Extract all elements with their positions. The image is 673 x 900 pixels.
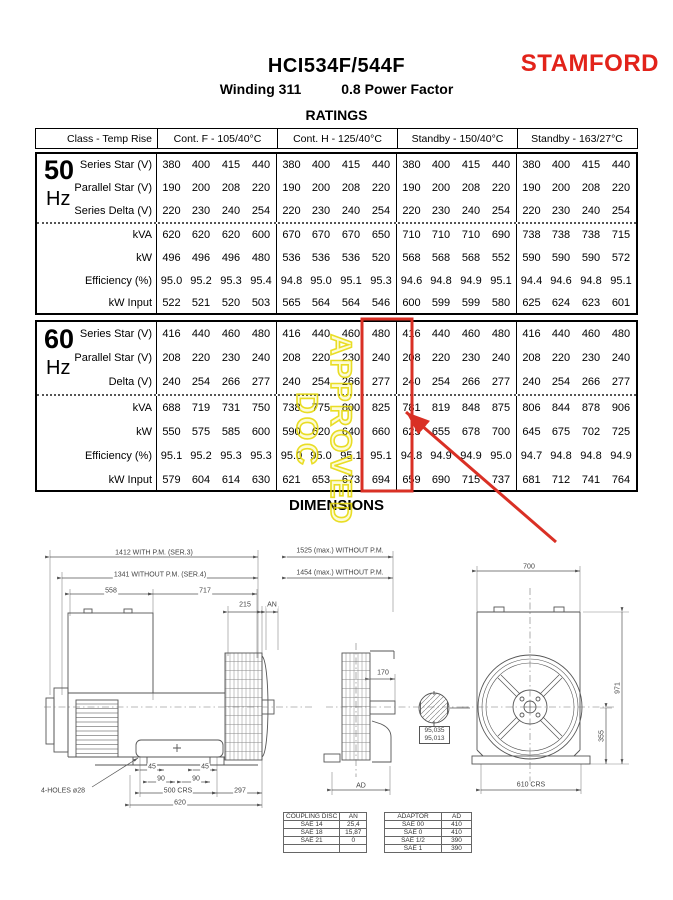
ratings-cell: 208 (276, 346, 306, 370)
dim-label: 170 (376, 670, 390, 677)
right-view-body (472, 607, 590, 764)
ratings-cell: 645 (516, 420, 546, 444)
ratings-cell: 599 (456, 292, 486, 315)
ratings-cell: 200 (306, 177, 336, 200)
dim-label: 4-HOLES ø28 (40, 788, 86, 795)
ratings-cell: 659 (396, 468, 426, 492)
left-view-extension-lines (50, 550, 278, 808)
ratings-cell: 655 (426, 420, 456, 444)
sae-cell: 15,87 (340, 829, 367, 837)
ratings-cell: 600 (396, 292, 426, 315)
ratings-cell: 400 (426, 154, 456, 177)
ratings-cell: 400 (306, 154, 336, 177)
ratings-cell: 95.1 (156, 444, 186, 468)
ratings-cell: 670 (306, 224, 336, 247)
ratings-cell: 95.3 (216, 269, 246, 292)
dim-label: 1454 (max.) WITHOUT P.M. (295, 570, 384, 577)
ratings-cell: 266 (576, 370, 606, 394)
ratings-cell: 95.0 (306, 269, 336, 292)
ratings-cell: 600 (246, 224, 276, 247)
ratings-row-label: kW Input (37, 292, 156, 315)
ratings-cell: 536 (276, 247, 306, 270)
sae-row: SAE 0410 (385, 829, 472, 837)
ratings-cell: 95.2 (186, 269, 216, 292)
ratings-cell: 585 (216, 420, 246, 444)
ratings-cell: 220 (606, 177, 636, 200)
subtitle: Winding 3110.8 Power Factor (0, 81, 673, 97)
ratings-cell: 277 (366, 370, 396, 394)
ratings-row: Parallel Star (V)19020020822019020020822… (37, 177, 636, 200)
ratings-header-row: Class - Temp RiseCont. F - 105/40°CCont.… (35, 128, 638, 149)
sae-row: ADAPTORAD (385, 813, 472, 821)
ratings-cell: 208 (336, 177, 366, 200)
ratings-cell: 875 (486, 396, 516, 420)
ratings-cell: 95.1 (486, 269, 516, 292)
sae-row: SAE 1/2390 (385, 837, 472, 845)
ratings-cell: 230 (186, 199, 216, 222)
ratings-cell: 415 (456, 154, 486, 177)
ratings-cell: 94.9 (456, 444, 486, 468)
ratings-cell: 806 (516, 396, 546, 420)
ratings-cell: 95.3 (216, 444, 246, 468)
ratings-cell: 240 (276, 370, 306, 394)
dim-label: 971 (615, 681, 622, 695)
ratings-cell: 208 (456, 177, 486, 200)
ratings-cell: 480 (246, 247, 276, 270)
ratings-cell: 731 (216, 396, 246, 420)
ratings-cell: 590 (546, 247, 576, 270)
ratings-cell: 254 (366, 199, 396, 222)
ratings-cell: 625 (516, 292, 546, 315)
ratings-column-header: Cont. H - 125/40°C (277, 129, 397, 148)
winding-label: Winding 311 (220, 81, 302, 97)
ratings-cell: 536 (336, 247, 366, 270)
ratings-cell: 254 (246, 199, 276, 222)
ratings-cell: 564 (336, 292, 366, 315)
ratings-cell: 460 (576, 322, 606, 346)
ratings-cell: 440 (606, 154, 636, 177)
ratings-cell: 254 (486, 199, 516, 222)
sae-row: COUPLING DISCAN (284, 813, 367, 821)
ratings-cell: 230 (576, 346, 606, 370)
ratings-cell: 599 (426, 292, 456, 315)
freq-50-unit: Hz (46, 189, 70, 209)
adaptor-table: ADAPTORADSAE 00410SAE 0410SAE 1/2390SAE … (384, 812, 472, 853)
sae-cell: COUPLING DISC (284, 813, 340, 821)
sae-cell: SAE 00 (385, 821, 442, 829)
ratings-cell: 536 (306, 247, 336, 270)
ratings-cell: 621 (276, 468, 306, 492)
left-view-dim-lines (50, 557, 278, 805)
ratings-cell: 440 (366, 154, 396, 177)
ratings-cell: 230 (456, 346, 486, 370)
sae-cell: SAE 18 (284, 829, 340, 837)
ratings-cell: 220 (246, 177, 276, 200)
ratings-cell: 94.9 (606, 444, 636, 468)
ratings-row-label: kW (37, 420, 156, 444)
dim-label: 500 CRS (163, 788, 193, 795)
datasheet-page: HCI534F/544F Winding 3110.8 Power Factor… (0, 0, 673, 900)
power-factor-label: 0.8 Power Factor (341, 81, 453, 97)
sae-cell: 410 (442, 821, 472, 829)
ratings-cell: 240 (366, 346, 396, 370)
dim-label: AN (266, 602, 278, 609)
left-view-body (46, 609, 274, 765)
ratings-cell: 208 (156, 346, 186, 370)
sae-cell: SAE 14 (284, 821, 340, 829)
sae-cell: SAE 1 (385, 845, 442, 853)
ratings-cell: 94.8 (576, 269, 606, 292)
ratings-cell: 579 (156, 468, 186, 492)
dim-label: 45 (147, 764, 157, 771)
ratings-cell: 675 (546, 420, 576, 444)
ratings-cell: 590 (576, 247, 606, 270)
ratings-cell: 254 (606, 199, 636, 222)
ratings-cell: 650 (366, 224, 396, 247)
ratings-cell: 600 (246, 420, 276, 444)
ratings-cell: 848 (456, 396, 486, 420)
ratings-cell: 725 (606, 420, 636, 444)
ratings-cell: 614 (216, 468, 246, 492)
ratings-cell: 240 (456, 199, 486, 222)
ratings-cell: 220 (276, 199, 306, 222)
ratings-cell: 230 (426, 199, 456, 222)
ratings-cell: 719 (186, 396, 216, 420)
sae-row: SAE 1425,4 (284, 821, 367, 829)
ratings-cell: 715 (456, 468, 486, 492)
ratings-row: Series Delta (V)220230240254220230240254… (37, 199, 636, 222)
ratings-cell: 522 (156, 292, 186, 315)
ratings-cell: 240 (576, 199, 606, 222)
ratings-cell: 400 (546, 154, 576, 177)
ratings-cell: 568 (396, 247, 426, 270)
ratings-cell: 620 (216, 224, 246, 247)
freq-60-label: 60 (44, 326, 74, 353)
ratings-cell: 440 (546, 322, 576, 346)
ratings-cell: 95.0 (156, 269, 186, 292)
ratings-cell: 380 (396, 154, 426, 177)
ratings-cell: 190 (156, 177, 186, 200)
ratings-cell: 496 (186, 247, 216, 270)
ratings-cell: 416 (156, 322, 186, 346)
sae-cell: AN (340, 813, 367, 821)
ratings-row: kW Input52252152050356556456454660059959… (37, 292, 636, 315)
ratings-cell: 95.3 (246, 444, 276, 468)
ratings-row: kW49649649648053653653652056856856855259… (37, 247, 636, 270)
sae-cell: 25,4 (340, 821, 367, 829)
freq-50-label: 50 (44, 157, 74, 184)
ratings-cell: 604 (186, 468, 216, 492)
ratings-cell: 95.2 (186, 444, 216, 468)
ratings-cell: 240 (246, 346, 276, 370)
ratings-cell: 460 (216, 322, 246, 346)
ratings-cell: 190 (396, 177, 426, 200)
ratings-cell: 94.6 (546, 269, 576, 292)
ratings-cell: 440 (486, 154, 516, 177)
ratings-row-label: Efficiency (%) (37, 444, 156, 468)
ratings-cell: 620 (156, 224, 186, 247)
ratings-cell: 220 (156, 199, 186, 222)
right-view-centerlines (462, 588, 614, 782)
ratings-cell: 681 (516, 468, 546, 492)
ratings-cell: 712 (546, 468, 576, 492)
ratings-cell: 546 (366, 292, 396, 315)
sae-cell: 390 (442, 837, 472, 845)
ratings-cell: 568 (426, 247, 456, 270)
ratings-cell: 819 (426, 396, 456, 420)
ratings-table-50hz: Series Star (V)3804004154403804004154403… (35, 152, 638, 315)
mid-view-body (324, 651, 470, 762)
dim-label: 1412 WITH P.M. (SER.3) (114, 550, 194, 557)
ratings-cell: 625 (396, 420, 426, 444)
ratings-cell: 503 (246, 292, 276, 315)
ratings-cell: 630 (246, 468, 276, 492)
ratings-cell: 94.8 (426, 269, 456, 292)
ratings-cell: 94.8 (546, 444, 576, 468)
ratings-cell: 825 (366, 396, 396, 420)
dim-label: 1341 WITHOUT P.M. (SER.4) (113, 572, 207, 579)
ratings-cell: 624 (546, 292, 576, 315)
ratings-cell: 878 (576, 396, 606, 420)
ratings-cell: 550 (156, 420, 186, 444)
ratings-row: Series Star (V)3804004154403804004154403… (37, 154, 636, 177)
sae-row: SAE 210 (284, 837, 367, 845)
ratings-column-header: Class - Temp Rise (36, 129, 157, 148)
ratings-cell: 94.6 (396, 269, 426, 292)
ratings-cell: 710 (426, 224, 456, 247)
ratings-cell: 94.4 (516, 269, 546, 292)
dim-label: AD (355, 783, 367, 790)
stamford-logo: STAMFORD (521, 50, 659, 78)
ratings-cell: 738 (516, 224, 546, 247)
dim-label: 717 (198, 588, 212, 595)
ratings-cell: 220 (546, 346, 576, 370)
ratings-cell: 440 (246, 154, 276, 177)
sae-cell: SAE 21 (284, 837, 340, 845)
ratings-cell: 208 (516, 346, 546, 370)
holes-leader-line (92, 758, 138, 787)
ratings-cell: 741 (576, 468, 606, 492)
ratings-cell: 590 (516, 247, 546, 270)
ratings-cell: 496 (216, 247, 246, 270)
ratings-cell: 572 (606, 247, 636, 270)
ratings-cell: 220 (396, 199, 426, 222)
ratings-cell: 94.9 (426, 444, 456, 468)
shaft-tolerance-box: 95,035 95,013 (419, 726, 450, 744)
ratings-cell: 480 (246, 322, 276, 346)
ratings-cell: 240 (216, 199, 246, 222)
ratings-cell: 200 (426, 177, 456, 200)
right-view-dim-lines (477, 571, 622, 790)
sae-cell (340, 845, 367, 853)
ratings-cell: 700 (486, 420, 516, 444)
ratings-cell: 230 (546, 199, 576, 222)
ratings-cell: 400 (186, 154, 216, 177)
ratings-column-header: Standby - 163/27°C (517, 129, 636, 148)
ratings-cell: 220 (366, 177, 396, 200)
dim-label: 90 (191, 776, 201, 783)
ratings-row: kVA6206206206006706706706507107107106907… (37, 222, 636, 247)
ratings-cell: 94.8 (396, 444, 426, 468)
sae-cell (284, 845, 340, 853)
ratings-cell: 230 (306, 199, 336, 222)
ratings-cell: 95.1 (606, 269, 636, 292)
dim-label: 620 (173, 800, 187, 807)
ratings-cell: 715 (606, 224, 636, 247)
dim-label: 610 CRS (516, 782, 546, 789)
ratings-cell: 520 (366, 247, 396, 270)
ratings-cell: 208 (396, 346, 426, 370)
ratings-cell: 415 (216, 154, 246, 177)
sae-cell: 390 (442, 845, 472, 853)
ratings-cell: 480 (486, 322, 516, 346)
ratings-cell: 764 (606, 468, 636, 492)
ratings-cell: 575 (186, 420, 216, 444)
dim-label: 215 (238, 602, 252, 609)
ratings-cell: 620 (186, 224, 216, 247)
ratings-cell: 240 (396, 370, 426, 394)
sae-cell: AD (442, 813, 472, 821)
ratings-row-label: kW (37, 247, 156, 270)
ratings-cell: 496 (156, 247, 186, 270)
freq-60-unit: Hz (46, 358, 70, 378)
sae-cell: ADAPTOR (385, 813, 442, 821)
dim-label: 1525 (max.) WITHOUT P.M. (295, 548, 384, 555)
ratings-cell: 254 (426, 370, 456, 394)
ratings-cell: 190 (276, 177, 306, 200)
ratings-cell: 710 (456, 224, 486, 247)
ratings-row-label: kVA (37, 224, 156, 247)
ratings-cell: 220 (426, 346, 456, 370)
ratings-cell: 380 (276, 154, 306, 177)
ratings-row-label: kW Input (37, 468, 156, 492)
ratings-cell: 95.4 (246, 269, 276, 292)
ratings-cell: 220 (486, 177, 516, 200)
ratings-cell: 660 (366, 420, 396, 444)
mid-view-centerlines (326, 643, 468, 777)
ratings-cell: 254 (186, 370, 216, 394)
ratings-cell: 95.0 (486, 444, 516, 468)
ratings-cell: 552 (486, 247, 516, 270)
ratings-cell: 266 (456, 370, 486, 394)
ratings-cell: 521 (186, 292, 216, 315)
ratings-cell: 440 (186, 322, 216, 346)
ratings-cell: 416 (276, 322, 306, 346)
ratings-cell: 200 (546, 177, 576, 200)
ratings-cell: 702 (576, 420, 606, 444)
ratings-cell: 623 (576, 292, 606, 315)
ratings-cell: 94.9 (456, 269, 486, 292)
ratings-cell: 240 (606, 346, 636, 370)
sae-row: SAE 1815,87 (284, 829, 367, 837)
ratings-cell: 601 (606, 292, 636, 315)
ratings-cell: 738 (576, 224, 606, 247)
ratings-cell: 380 (156, 154, 186, 177)
coupling-disc-table: COUPLING DISCANSAE 1425,4SAE 1815,87SAE … (283, 812, 367, 853)
ratings-cell: 568 (456, 247, 486, 270)
ratings-cell: 416 (396, 322, 426, 346)
ratings-cell: 480 (606, 322, 636, 346)
ratings-cell: 906 (606, 396, 636, 420)
ratings-cell: 208 (216, 177, 246, 200)
ratings-cell: 277 (606, 370, 636, 394)
ratings-cell: 710 (396, 224, 426, 247)
sae-row: SAE 1390 (385, 845, 472, 853)
ratings-column-header: Cont. F - 105/40°C (157, 129, 277, 148)
ratings-cell: 460 (456, 322, 486, 346)
dim-label: 45 (200, 764, 210, 771)
ratings-cell: 580 (486, 292, 516, 315)
ratings-cell: 738 (546, 224, 576, 247)
ratings-column-header: Standby - 150/40°C (397, 129, 517, 148)
ratings-cell: 440 (426, 322, 456, 346)
ratings-cell: 564 (306, 292, 336, 315)
ratings-cell: 208 (576, 177, 606, 200)
ratings-cell: 240 (516, 370, 546, 394)
ratings-cell: 380 (516, 154, 546, 177)
dim-label: 355 (599, 729, 606, 743)
ratings-cell: 416 (516, 322, 546, 346)
ratings-cell: 240 (486, 346, 516, 370)
approval-watermark: APPROVED DOC (323, 315, 357, 545)
ratings-cell: 220 (186, 346, 216, 370)
dim-label: 558 (104, 588, 118, 595)
ratings-cell: 415 (336, 154, 366, 177)
sae-cell: SAE 0 (385, 829, 442, 837)
ratings-cell: 266 (216, 370, 246, 394)
ratings-cell: 200 (186, 177, 216, 200)
right-view-extension-lines (477, 566, 629, 794)
ratings-cell: 565 (276, 292, 306, 315)
dim-label: 700 (522, 564, 536, 571)
ratings-cell: 240 (156, 370, 186, 394)
sae-row (284, 845, 367, 853)
ratings-cell: 277 (486, 370, 516, 394)
ratings-cell: 95.3 (366, 269, 396, 292)
sae-cell: 410 (442, 829, 472, 837)
ratings-cell: 670 (336, 224, 366, 247)
dim-label: 90 (156, 776, 166, 783)
sae-row: SAE 00410 (385, 821, 472, 829)
ratings-cell: 415 (576, 154, 606, 177)
ratings-cell: 277 (246, 370, 276, 394)
ratings-cell: 94.7 (516, 444, 546, 468)
ratings-cell: 95.1 (336, 269, 366, 292)
ratings-cell: 94.8 (576, 444, 606, 468)
sae-cell: 0 (340, 837, 367, 845)
ratings-row-label: Efficiency (%) (37, 269, 156, 292)
ratings-heading: RATINGS (0, 107, 673, 123)
ratings-row: Efficiency (%)95.095.295.395.494.895.095… (37, 269, 636, 292)
ratings-cell: 690 (426, 468, 456, 492)
ratings-cell: 520 (216, 292, 246, 315)
ratings-cell: 750 (246, 396, 276, 420)
ratings-row-label: kVA (37, 396, 156, 420)
shaft-tolerance-lower: 95,013 (425, 735, 445, 743)
ratings-cell: 230 (216, 346, 246, 370)
ratings-cell: 844 (546, 396, 576, 420)
ratings-cell: 480 (366, 322, 396, 346)
ratings-cell: 694 (366, 468, 396, 492)
ratings-cell: 781 (396, 396, 426, 420)
ratings-cell: 670 (276, 224, 306, 247)
ratings-cell: 688 (156, 396, 186, 420)
shaft-tolerance-upper: 95,035 (425, 727, 445, 735)
ratings-cell: 94.8 (276, 269, 306, 292)
sae-cell: SAE 1/2 (385, 837, 442, 845)
dim-label: 297 (233, 788, 247, 795)
ratings-cell: 678 (456, 420, 486, 444)
